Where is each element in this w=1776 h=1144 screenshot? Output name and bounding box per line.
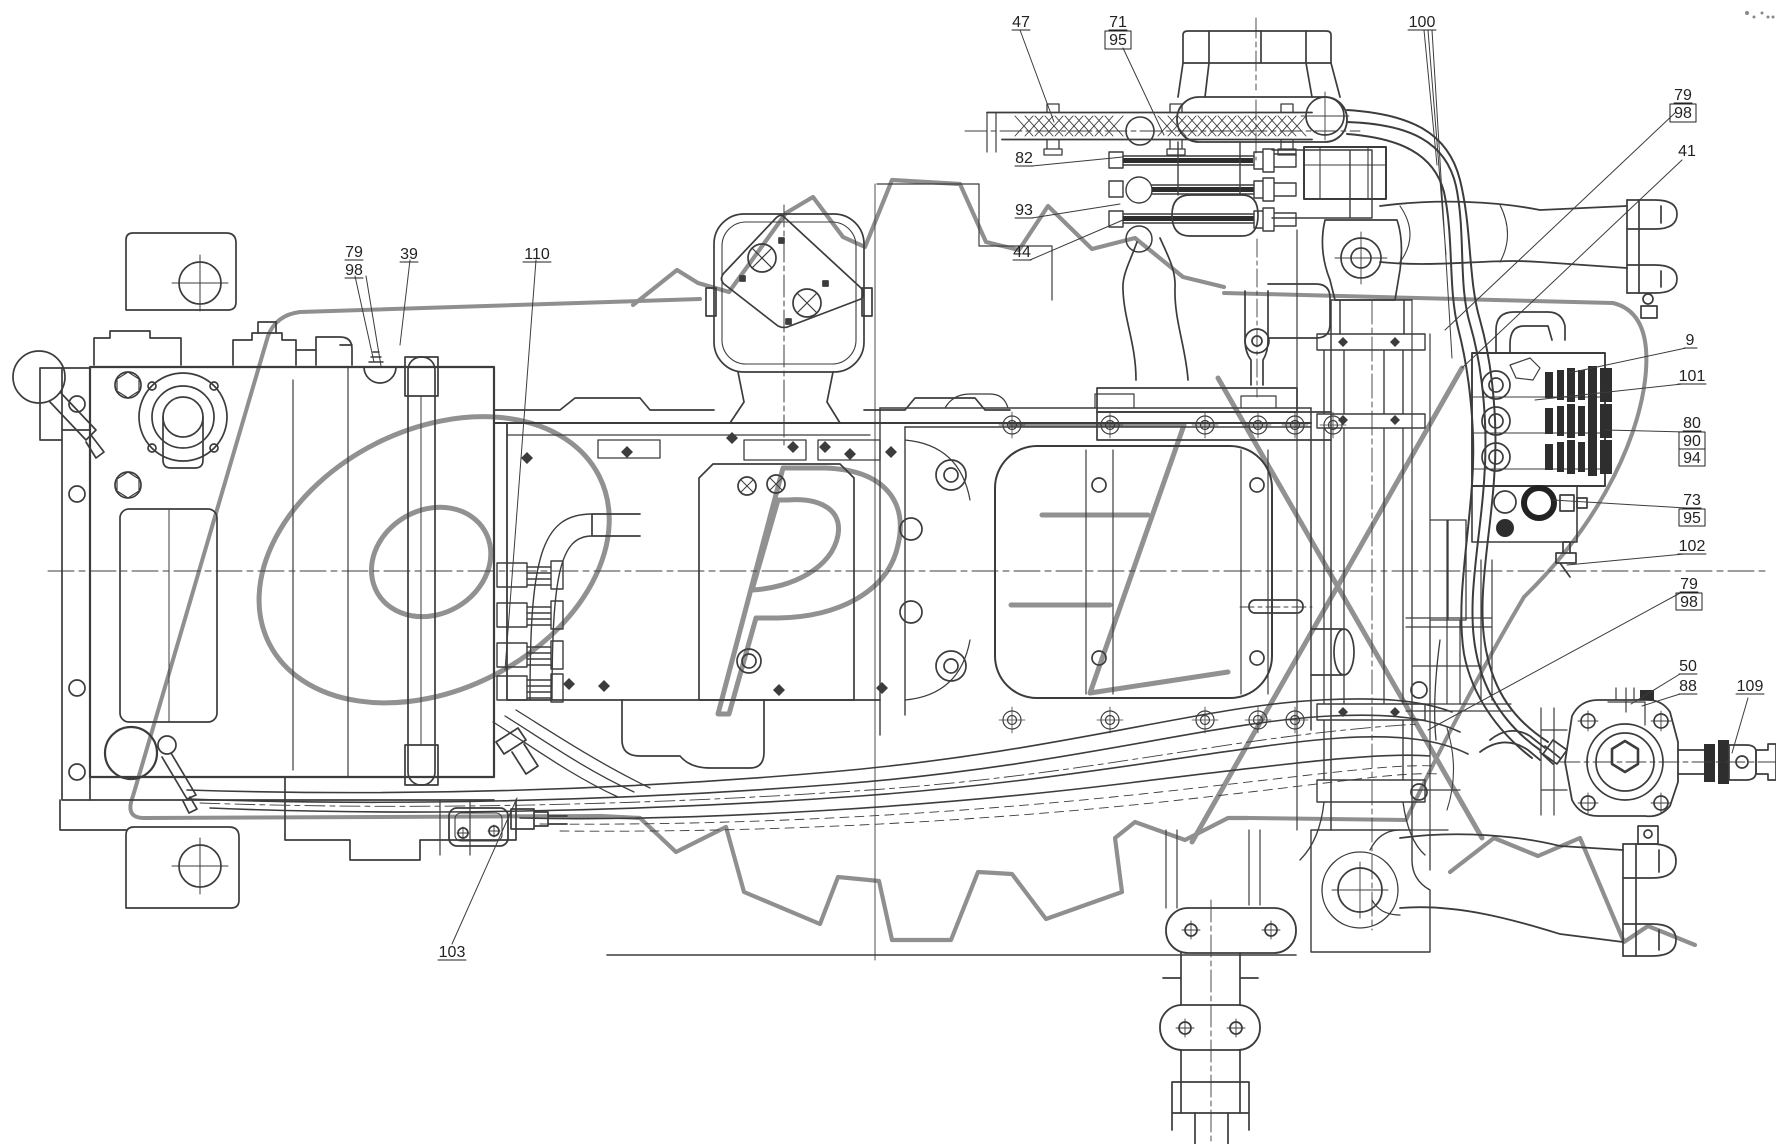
svg-text:93: 93 (1015, 202, 1033, 219)
svg-text:44: 44 (1013, 244, 1031, 261)
svg-text:79: 79 (345, 244, 363, 261)
svg-text:98: 98 (345, 262, 363, 279)
svg-text:79: 79 (1680, 576, 1698, 593)
svg-text:101: 101 (1679, 368, 1706, 385)
svg-text:90: 90 (1683, 433, 1701, 450)
svg-text:103: 103 (439, 944, 466, 961)
svg-text:80: 80 (1683, 415, 1701, 432)
svg-text:95: 95 (1109, 32, 1127, 49)
svg-text:100: 100 (1409, 14, 1436, 31)
svg-text:47: 47 (1012, 14, 1030, 31)
svg-text:110: 110 (524, 246, 550, 263)
svg-text:94: 94 (1683, 450, 1701, 467)
svg-text:41: 41 (1678, 143, 1696, 160)
svg-text:82: 82 (1015, 150, 1033, 167)
svg-text:71: 71 (1109, 14, 1127, 31)
svg-text:73: 73 (1683, 492, 1701, 509)
svg-text:95: 95 (1683, 510, 1701, 527)
svg-text:98: 98 (1674, 105, 1692, 122)
svg-text:50: 50 (1679, 658, 1697, 675)
svg-text:9: 9 (1686, 332, 1695, 349)
svg-text:79: 79 (1674, 87, 1692, 104)
svg-text:102: 102 (1679, 538, 1706, 555)
svg-text:39: 39 (400, 246, 418, 263)
svg-text:98: 98 (1680, 594, 1698, 611)
svg-text:109: 109 (1737, 678, 1764, 695)
svg-text:88: 88 (1679, 678, 1697, 695)
